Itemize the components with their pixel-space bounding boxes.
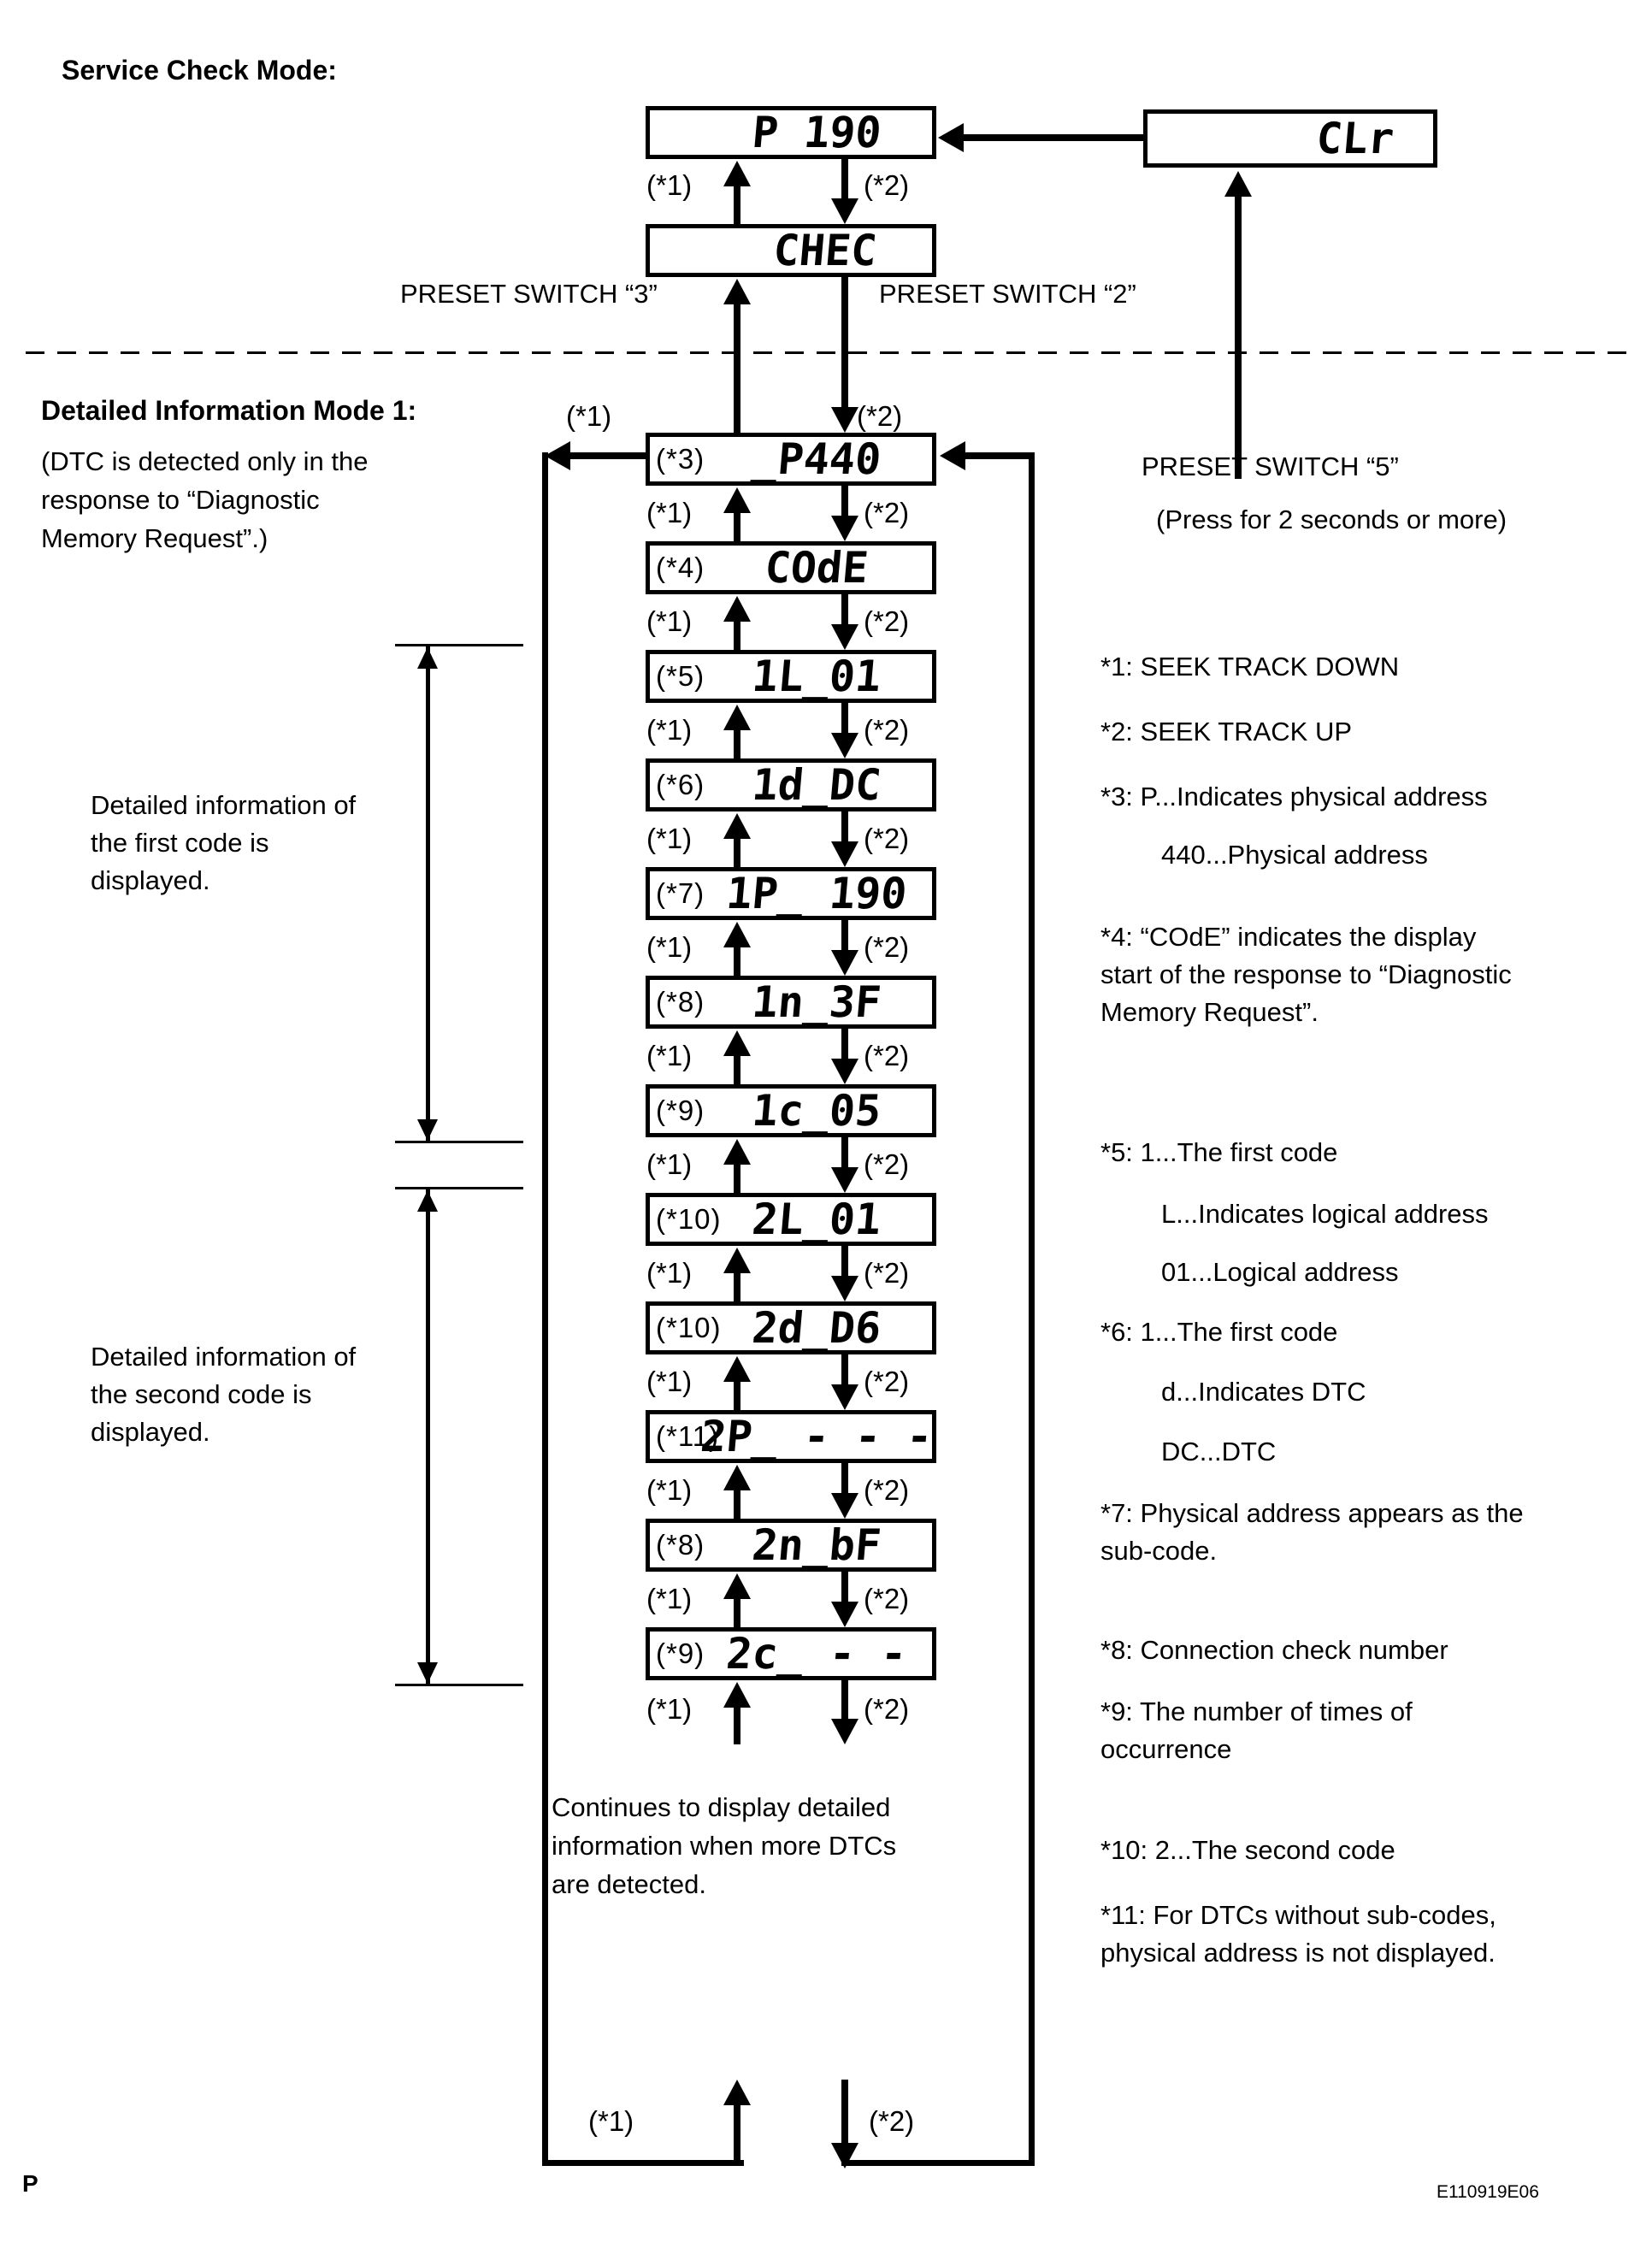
seq-box-2l01: (*10) 2L_01 [646, 1193, 936, 1246]
preset-switch-3-label: PRESET SWITCH “3” [400, 279, 658, 310]
seek-up-arrow [841, 1137, 848, 1169]
detail-mode-title: Detailed Information Mode 1: [41, 395, 416, 427]
arrow-left-icon [940, 441, 965, 470]
seven-seg-display: CLr [1145, 114, 1435, 163]
seek-down-tag: (*1) [646, 823, 692, 855]
seven-seg-display: 1n_3F [648, 980, 935, 1024]
seek-up-arrow [841, 703, 848, 735]
bracket-tick [395, 644, 523, 646]
seek-down-arrow [734, 510, 740, 541]
arrow-down-icon [831, 1493, 858, 1519]
preset-switch-5-note: (Press for 2 seconds or more) [1156, 505, 1507, 535]
seek-up-arrow [841, 277, 848, 407]
seven-seg-display: 2d_D6 [648, 1306, 935, 1350]
footnote-5-sub: 01...Logical address [1161, 1257, 1398, 1288]
preset-switch-5-label: PRESET SWITCH “5” [1142, 451, 1399, 482]
seven-seg-display: 1L_01 [648, 654, 935, 699]
seven-seg-display: 1c_05 [648, 1089, 935, 1133]
display-box-chec: CHEC [646, 224, 936, 277]
arrow-down-icon [417, 1662, 438, 1684]
seek-down-tag: (*1) [646, 1257, 692, 1289]
seek-up-tag: (*2) [864, 1583, 909, 1615]
seek-up-arrow [841, 1680, 848, 1719]
bracket-tick [395, 1187, 523, 1189]
detail-mode-note-line: Memory Request”.) [41, 523, 268, 554]
page-title: Service Check Mode: [62, 55, 337, 86]
seven-seg-display: P 190 [648, 110, 935, 155]
seek-up-tag: (*2) [864, 1474, 909, 1507]
seven-seg-display: _P440 [648, 437, 935, 481]
bracket-tick [395, 1684, 523, 1686]
arrow-down-icon [831, 1384, 858, 1410]
second-code-note-line: displayed. [91, 1417, 210, 1448]
detail-mode-note-line: (DTC is detected only in the [41, 446, 369, 477]
seek-down-arrow [734, 1053, 740, 1084]
footnote-3-sub: 440...Physical address [1161, 840, 1428, 870]
seven-seg-display: 2n_bF [648, 1523, 935, 1567]
seek-up-arrow [841, 811, 848, 843]
seq-box-2p: (*11) 2P_ - - - [646, 1410, 936, 1463]
arrow-down-icon [831, 1719, 858, 1744]
clr-to-p190-arrow [962, 134, 1143, 141]
seek-down-arrow [734, 727, 740, 758]
seek-down-arrow [734, 1596, 740, 1627]
seek-down-arrow [734, 1378, 740, 1410]
detail-mode-note-line: response to “Diagnostic [41, 485, 320, 516]
seek-up-tag: (*2) [864, 1693, 909, 1726]
seek-down-arrow [734, 1270, 740, 1301]
seven-seg-display: 1P_ 190 [648, 871, 935, 916]
page-marker: P [22, 2170, 38, 2198]
footnote-7-line: sub-code. [1100, 1536, 1217, 1567]
seek-down-arrow [734, 835, 740, 867]
first-code-note-line: displayed. [91, 865, 210, 896]
seek-down-tag: (*1) [646, 1693, 692, 1726]
right-loop-bottom-line [841, 2160, 1035, 2166]
arrow-down-icon [831, 950, 858, 976]
seek-up-arrow [841, 1463, 848, 1495]
seven-seg-display: CHEC [648, 228, 935, 273]
seek-down-tag: (*1) [646, 1366, 692, 1398]
footnote-7-line: *7: Physical address appears as the [1100, 1498, 1524, 1529]
seven-seg-display: COdE [648, 546, 935, 590]
left-loop-bottom-line [542, 2160, 744, 2166]
seek-up-arrow [841, 920, 848, 952]
seek-up-tag: (*2) [864, 1148, 909, 1181]
seek-down-tag: (*1) [566, 400, 611, 433]
figure-id: E110919E06 [1437, 2182, 1539, 2203]
seven-seg-display: 2L_01 [648, 1197, 935, 1242]
arrow-down-icon [831, 733, 858, 758]
seek-down-arrow [734, 944, 740, 976]
seek-up-tag: (*2) [864, 497, 909, 529]
footnote-5-sub: L...Indicates logical address [1161, 1199, 1489, 1230]
arrow-down-icon [831, 1167, 858, 1193]
seek-down-tag: (*1) [646, 1148, 692, 1181]
continues-note-line: Continues to display detailed [552, 1792, 890, 1823]
left-loop-line [542, 452, 548, 2166]
footnote-11-line: *11: For DTCs without sub-codes, [1100, 1900, 1496, 1931]
bottom-seek-down-arrow [734, 2102, 740, 2160]
seek-down-tag: (*1) [646, 714, 692, 746]
seek-up-tag: (*2) [864, 1366, 909, 1398]
footnote-9-line: occurrence [1100, 1734, 1231, 1765]
seek-up-arrow [841, 486, 848, 517]
service-manual-diagram-page: Service Check Mode: Detailed Information… [0, 0, 1652, 2266]
footnote-9-line: *9: The number of times of [1100, 1697, 1413, 1727]
seq-box-1ddc: (*6) 1d_DC [646, 758, 936, 811]
seek-down-arrow [734, 301, 740, 433]
footnote-8: *8: Connection check number [1100, 1635, 1448, 1666]
footnote-6-sub: DC...DTC [1161, 1437, 1276, 1467]
seek-up-tag: (*2) [864, 714, 909, 746]
seek-down-tag: (*1) [646, 497, 692, 529]
arrow-down-icon [417, 1119, 438, 1141]
bottom-seek-up-arrow [841, 2080, 848, 2143]
arrow-down-icon [831, 1276, 858, 1301]
footnote-4-line: Memory Request”. [1100, 997, 1319, 1028]
preset-switch-2-label: PRESET SWITCH “2” [879, 279, 1136, 310]
arrow-up-icon [417, 1190, 438, 1212]
seek-up-arrow [841, 594, 848, 626]
seven-seg-display: 2P_ - - - [648, 1414, 935, 1459]
right-loop-line [1029, 452, 1035, 2166]
arrow-down-icon [831, 841, 858, 867]
display-box-p190: P 190 [646, 106, 936, 159]
seek-down-arrow [734, 1161, 740, 1193]
second-code-note-line: the second code is [91, 1379, 312, 1410]
seq-box-1c05: (*9) 1c_05 [646, 1084, 936, 1137]
seq-box-2dd6: (*10) 2d_D6 [646, 1301, 936, 1354]
seek-down-tag: (*1) [646, 169, 692, 202]
first-code-note-line: the first code is [91, 828, 268, 859]
arrow-left-icon [545, 441, 570, 470]
seek-up-tag: (*2) [864, 823, 909, 855]
first-code-extent-arrow [426, 646, 430, 1141]
seek-up-tag: (*2) [869, 2105, 914, 2138]
second-code-extent-arrow [426, 1189, 430, 1684]
seek-up-arrow [841, 1029, 848, 1060]
seek-down-tag: (*1) [588, 2105, 634, 2138]
footnote-11-line: physical address is not displayed. [1100, 1938, 1496, 1968]
seek-down-arrow [734, 1487, 740, 1519]
seven-seg-display: 1d_DC [648, 763, 935, 807]
seq-box-1p190: (*7) 1P_ 190 [646, 867, 936, 920]
continues-note-line: information when more DTCs [552, 1831, 896, 1862]
footnote-4-line: start of the response to “Diagnostic [1100, 959, 1512, 990]
seq-box-code: (*4) COdE [646, 541, 936, 594]
seq-box-2c: (*9) 2c_ - - [646, 1627, 936, 1680]
footnote-6-sub: d...Indicates DTC [1161, 1377, 1366, 1407]
seek-up-arrow [841, 1354, 848, 1386]
footnote-5: *5: 1...The first code [1100, 1137, 1337, 1168]
mode-divider-dashed-line [26, 351, 1628, 354]
seek-up-arrow [841, 159, 848, 200]
seek-down-tag: (*1) [646, 605, 692, 638]
first-code-note-line: Detailed information of [91, 790, 356, 821]
arrow-down-icon [831, 407, 858, 433]
seek-up-tag: (*2) [864, 1040, 909, 1072]
footnote-3: *3: P...Indicates physical address [1100, 782, 1488, 812]
footnote-4-line: *4: “COdE” indicates the display [1100, 922, 1476, 953]
seek-down-arrow [734, 618, 740, 650]
footnote-6: *6: 1...The first code [1100, 1317, 1337, 1348]
footnote-2: *2: SEEK TRACK UP [1100, 717, 1352, 747]
arrow-up-icon [417, 647, 438, 669]
seq-box-1l01: (*5) 1L_01 [646, 650, 936, 703]
arrow-left-icon [938, 123, 964, 152]
seek-down-tag: (*1) [646, 1040, 692, 1072]
seek-up-tag: (*2) [864, 931, 909, 964]
seek-up-tag: (*2) [864, 169, 909, 202]
seek-up-arrow [841, 1246, 848, 1278]
wrap-to-p440-arrow [964, 452, 1029, 459]
seek-up-tag: (*2) [864, 605, 909, 638]
seek-up-tag: (*2) [864, 1257, 909, 1289]
continues-note-line: are detected. [552, 1869, 706, 1900]
arrow-down-icon [831, 198, 858, 224]
p440-wrap-arrow [569, 452, 646, 459]
seek-down-arrow [734, 183, 740, 224]
bracket-tick [395, 1141, 523, 1143]
preset5-to-clr-arrow [1235, 193, 1242, 479]
seek-down-tag: (*1) [646, 1474, 692, 1507]
arrow-down-icon [831, 516, 858, 541]
arrow-down-icon [831, 624, 858, 650]
display-box-clr: CLr [1143, 109, 1437, 168]
seq-box-p440: (*3) _P440 [646, 433, 936, 486]
arrow-down-icon [831, 1602, 858, 1627]
seek-up-tag: (*2) [857, 400, 902, 433]
seek-down-tag: (*1) [646, 1583, 692, 1615]
second-code-note-line: Detailed information of [91, 1342, 356, 1372]
footnote-10: *10: 2...The second code [1100, 1835, 1395, 1866]
seven-seg-display: 2c_ - - [648, 1632, 935, 1676]
footnote-1: *1: SEEK TRACK DOWN [1100, 652, 1399, 682]
seek-up-arrow [841, 1572, 848, 1603]
arrow-down-icon [831, 1059, 858, 1084]
seq-box-1n3f: (*8) 1n_3F [646, 976, 936, 1029]
seek-down-tag: (*1) [646, 931, 692, 964]
seq-box-2nbf: (*8) 2n_bF [646, 1519, 936, 1572]
seek-down-arrow [734, 1704, 740, 1744]
arrow-down-icon [831, 2143, 858, 2169]
